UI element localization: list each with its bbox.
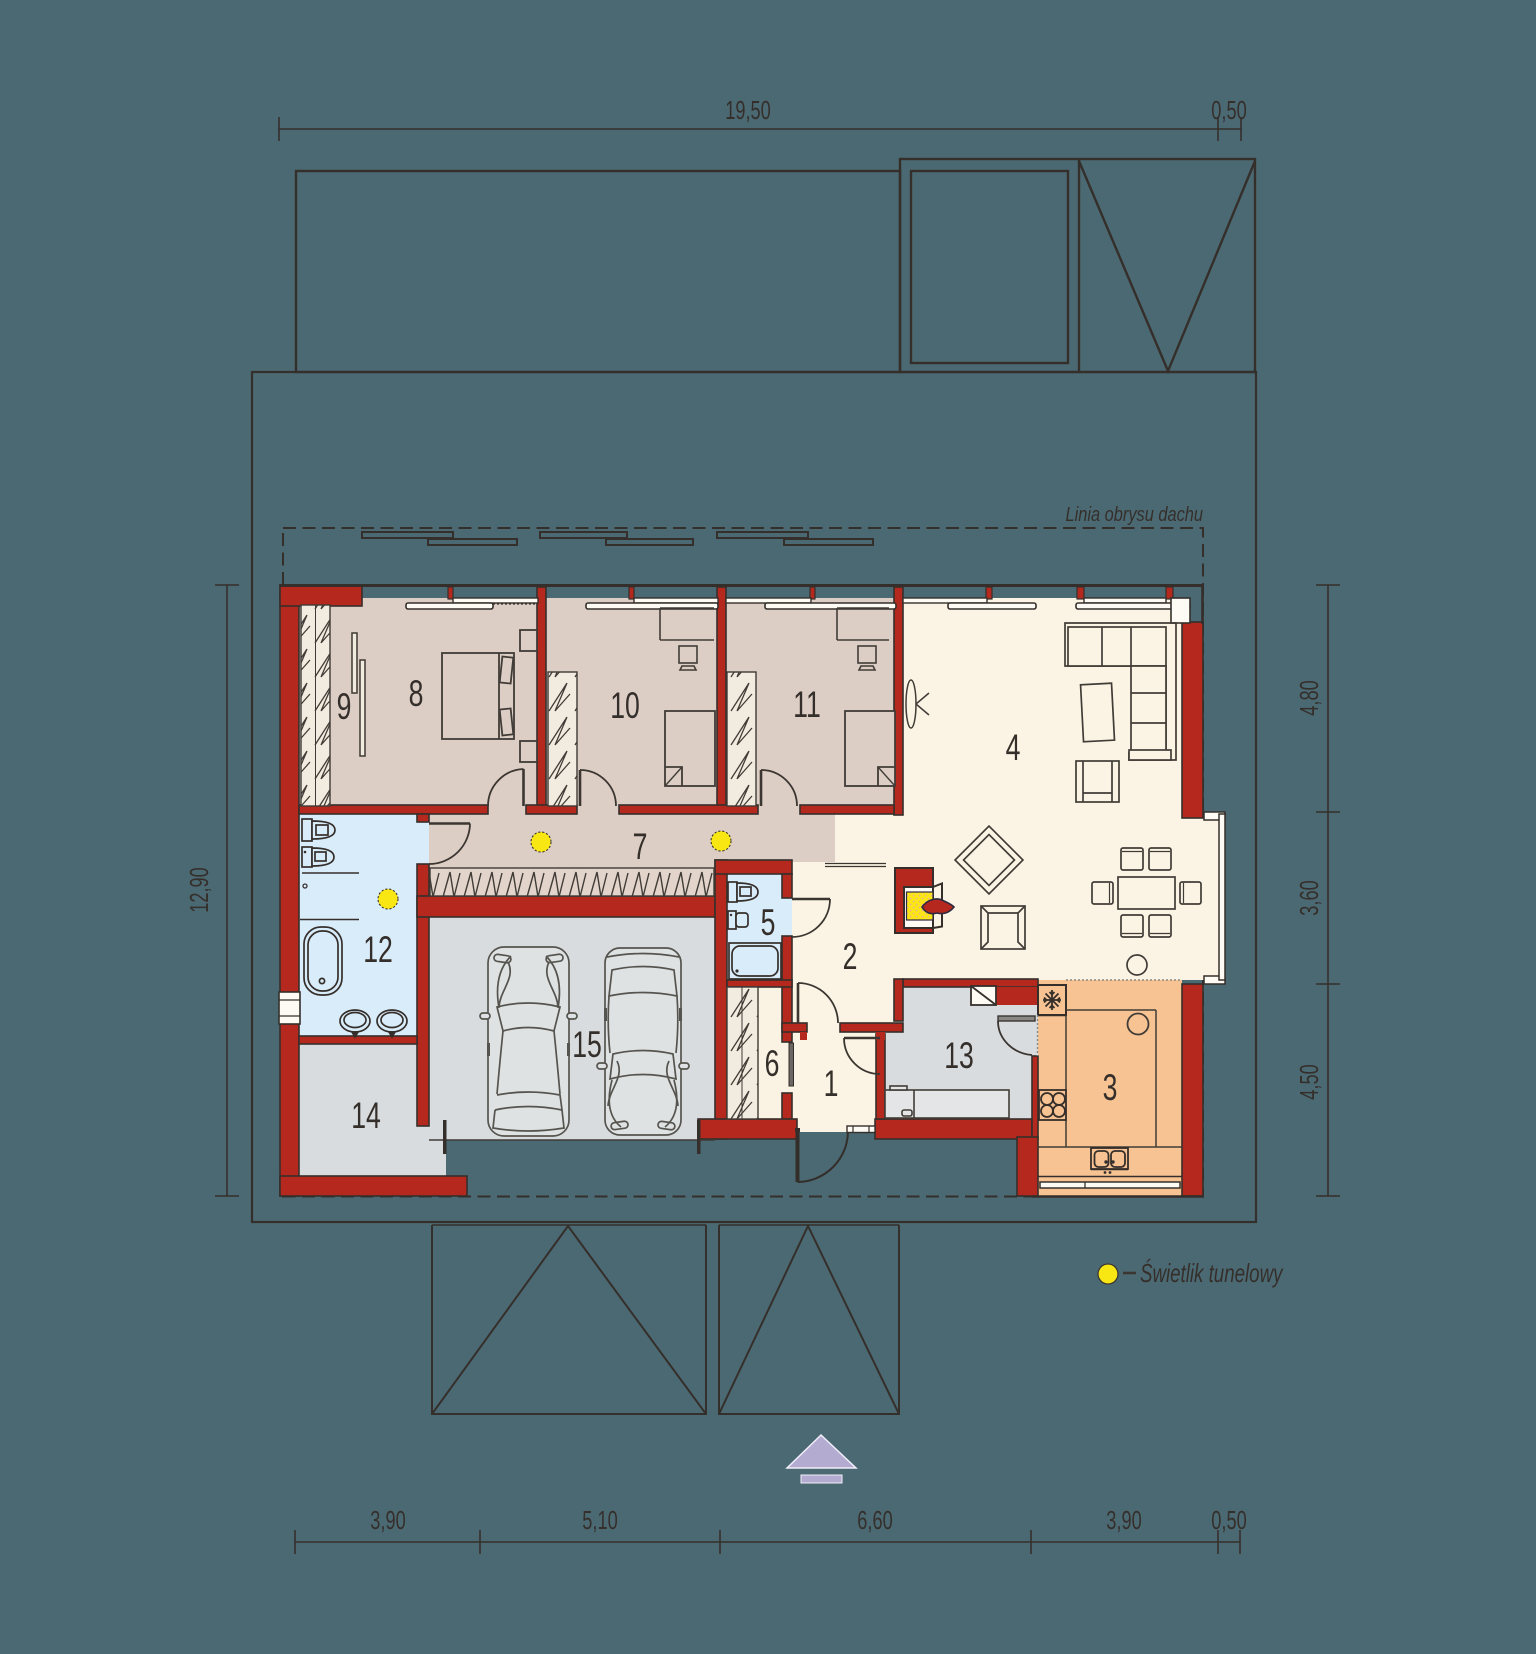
svg-text:3: 3 — [1103, 1067, 1118, 1108]
svg-text:19,50: 19,50 — [725, 96, 771, 125]
svg-text:10: 10 — [610, 685, 640, 726]
svg-text:3,90: 3,90 — [1106, 1506, 1141, 1535]
svg-text:4,80: 4,80 — [1295, 680, 1324, 715]
svg-text:3,90: 3,90 — [370, 1506, 405, 1535]
svg-text:0,50: 0,50 — [1211, 96, 1246, 125]
svg-text:3,60: 3,60 — [1295, 880, 1324, 915]
svg-text:5,10: 5,10 — [582, 1506, 617, 1535]
svg-text:14: 14 — [351, 1095, 381, 1136]
svg-text:5: 5 — [761, 902, 776, 943]
svg-text:8: 8 — [409, 673, 424, 714]
svg-text:7: 7 — [633, 826, 648, 867]
svg-text:9: 9 — [337, 686, 352, 727]
svg-text:1: 1 — [824, 1063, 839, 1104]
svg-text:Świetlik tunelowy: Świetlik tunelowy — [1140, 1258, 1284, 1288]
svg-text:Linia obrysu dachu: Linia obrysu dachu — [1065, 502, 1203, 525]
svg-text:6: 6 — [765, 1043, 780, 1084]
svg-text:11: 11 — [793, 684, 821, 725]
svg-text:13: 13 — [944, 1035, 974, 1076]
svg-text:4,50: 4,50 — [1295, 1064, 1324, 1099]
svg-text:6,60: 6,60 — [857, 1506, 892, 1535]
svg-text:2: 2 — [843, 936, 858, 977]
svg-text:0,50: 0,50 — [1211, 1506, 1246, 1535]
svg-text:12,90: 12,90 — [185, 867, 214, 913]
svg-text:4: 4 — [1006, 727, 1021, 768]
svg-text:15: 15 — [572, 1024, 602, 1065]
svg-text:12: 12 — [363, 929, 393, 970]
